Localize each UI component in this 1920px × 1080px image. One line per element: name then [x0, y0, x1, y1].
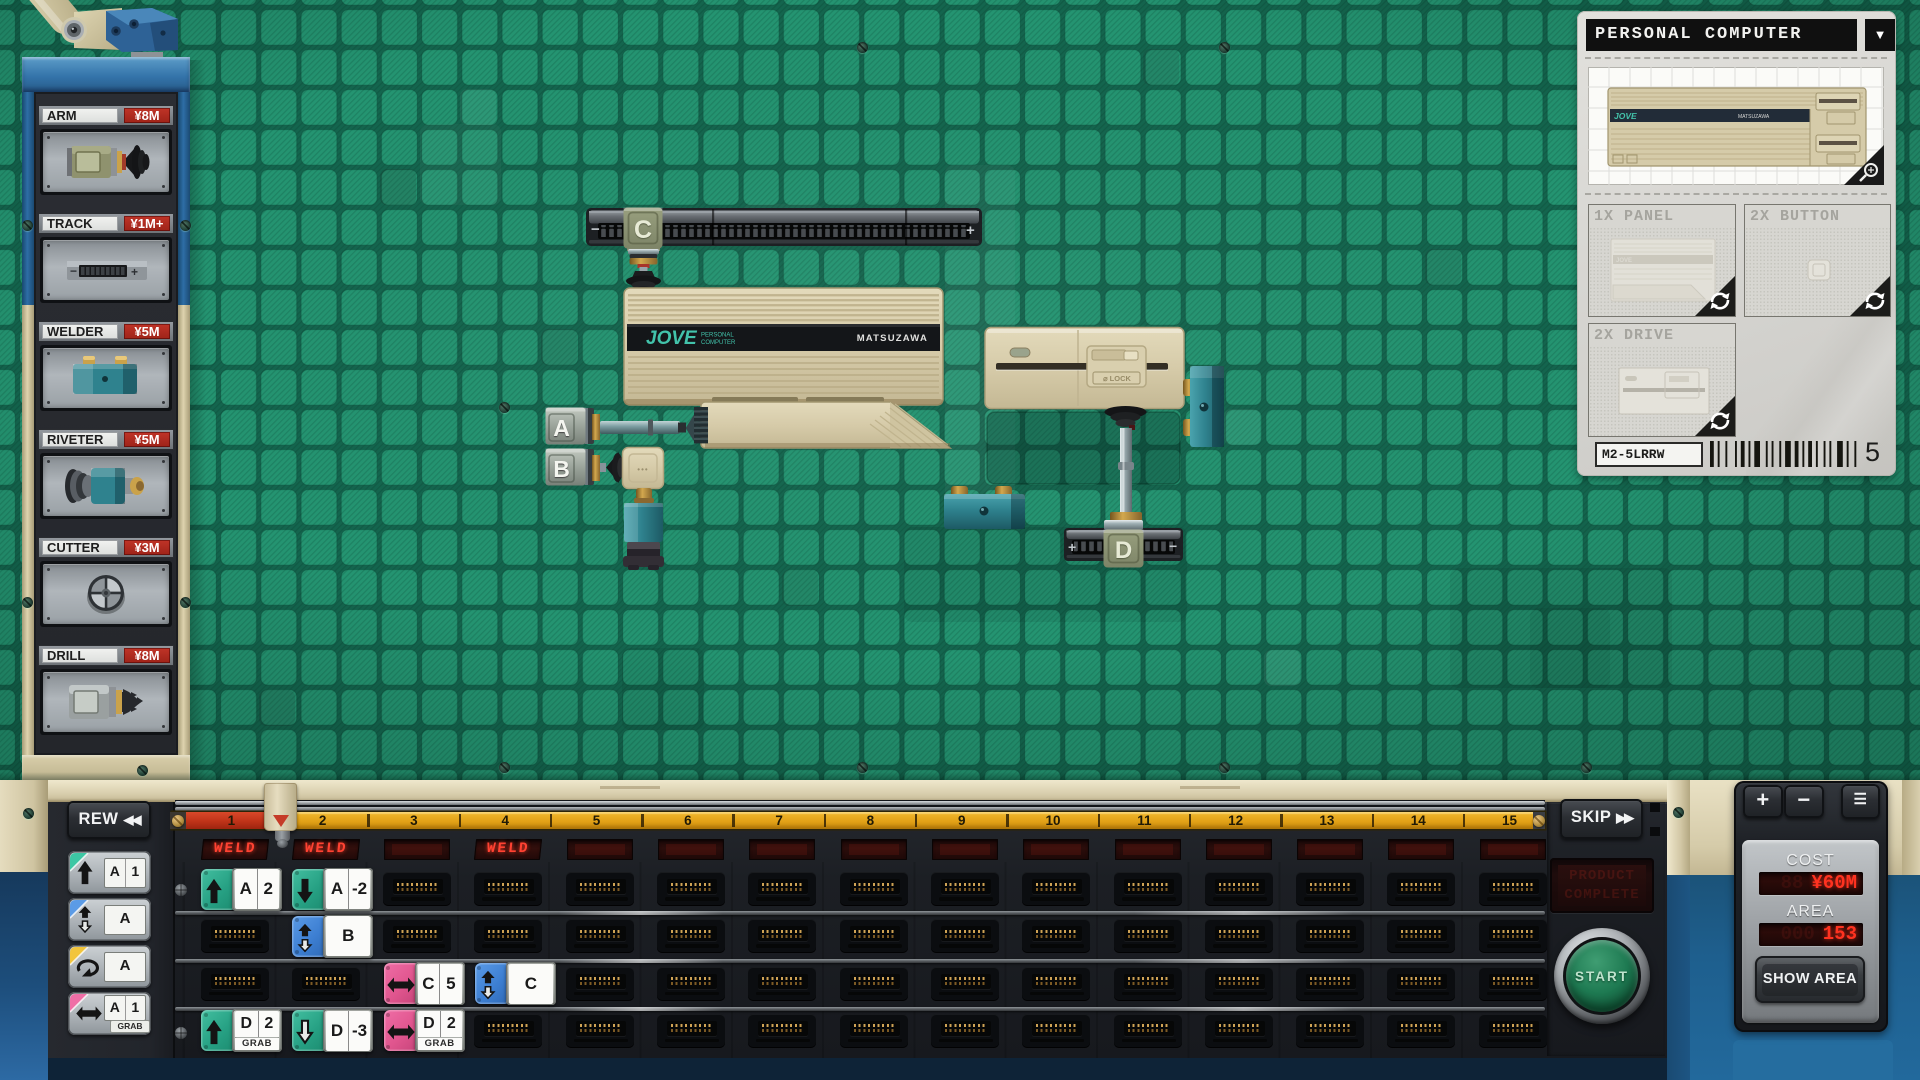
svg-text:•••: •••: [637, 465, 648, 474]
svg-text:PERSONAL: PERSONAL: [701, 333, 734, 339]
svg-text:A: A: [553, 415, 570, 441]
svg-text:+: +: [966, 222, 975, 239]
svg-text:−: −: [70, 264, 77, 278]
svg-text:⌀ LOCK: ⌀ LOCK: [1103, 374, 1131, 383]
svg-text:B: B: [553, 456, 570, 482]
svg-text:COMPUTER: COMPUTER: [701, 340, 736, 346]
svg-text:JOVE: JOVE: [1616, 258, 1632, 264]
svg-text:+: +: [131, 265, 138, 279]
svg-text:JOVE: JOVE: [646, 328, 698, 349]
svg-text:−: −: [591, 221, 600, 238]
svg-text:C: C: [634, 216, 652, 244]
svg-text:MATSUZAWA: MATSUZAWA: [857, 333, 928, 344]
svg-text:JOVE: JOVE: [1614, 111, 1637, 121]
svg-text:MATSUZAWA: MATSUZAWA: [1738, 114, 1770, 120]
svg-text:D: D: [1115, 537, 1132, 564]
svg-text:−: −: [1169, 538, 1177, 554]
svg-text:+: +: [1068, 539, 1076, 555]
